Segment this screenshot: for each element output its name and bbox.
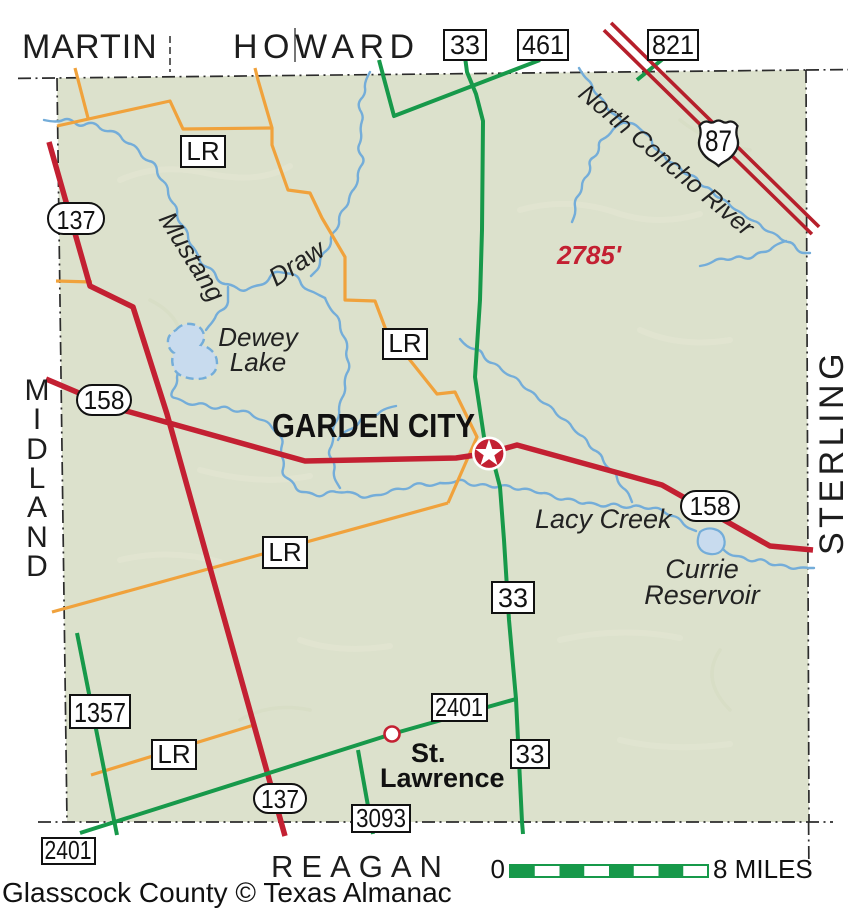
svg-text:158: 158 [690,491,731,521]
svg-text:33: 33 [516,739,545,769]
svg-text:158: 158 [84,385,125,415]
svg-text:8 MILES: 8 MILES [713,854,813,884]
svg-text:33: 33 [450,30,480,60]
svg-text:LR: LR [268,537,301,567]
svg-text:3093: 3093 [356,803,406,833]
svg-text:0: 0 [491,854,505,884]
svg-text:Lacy Creek: Lacy Creek [535,504,673,534]
svg-text:1357: 1357 [74,697,126,728]
svg-text:2401: 2401 [435,692,483,722]
svg-text:LR: LR [388,328,421,358]
svg-text:LR: LR [186,136,219,166]
svg-text:STERLING: STERLING [813,349,851,555]
svg-text:Lake: Lake [230,347,286,377]
svg-text:GARDEN CITY: GARDEN CITY [272,407,475,444]
svg-text:A: A [27,491,47,524]
svg-text:2785': 2785' [556,240,622,270]
svg-text:Reservoir: Reservoir [644,580,761,610]
svg-text:33: 33 [498,583,528,613]
svg-text:LR: LR [157,739,190,769]
svg-text:2401: 2401 [45,835,92,865]
svg-text:D: D [26,550,48,583]
svg-text:Lawrence: Lawrence [380,763,505,793]
svg-text:137: 137 [57,205,96,235]
svg-text:Glasscock County © Texas Alman: Glasscock County © Texas Almanac [2,877,452,908]
svg-text:137: 137 [261,784,299,814]
svg-text:461: 461 [522,30,564,60]
svg-text:HOWARD: HOWARD [233,28,420,66]
svg-text:I: I [33,403,41,436]
svg-text:821: 821 [652,30,694,60]
svg-text:87: 87 [705,125,732,158]
svg-text:MARTIN: MARTIN [22,28,158,66]
